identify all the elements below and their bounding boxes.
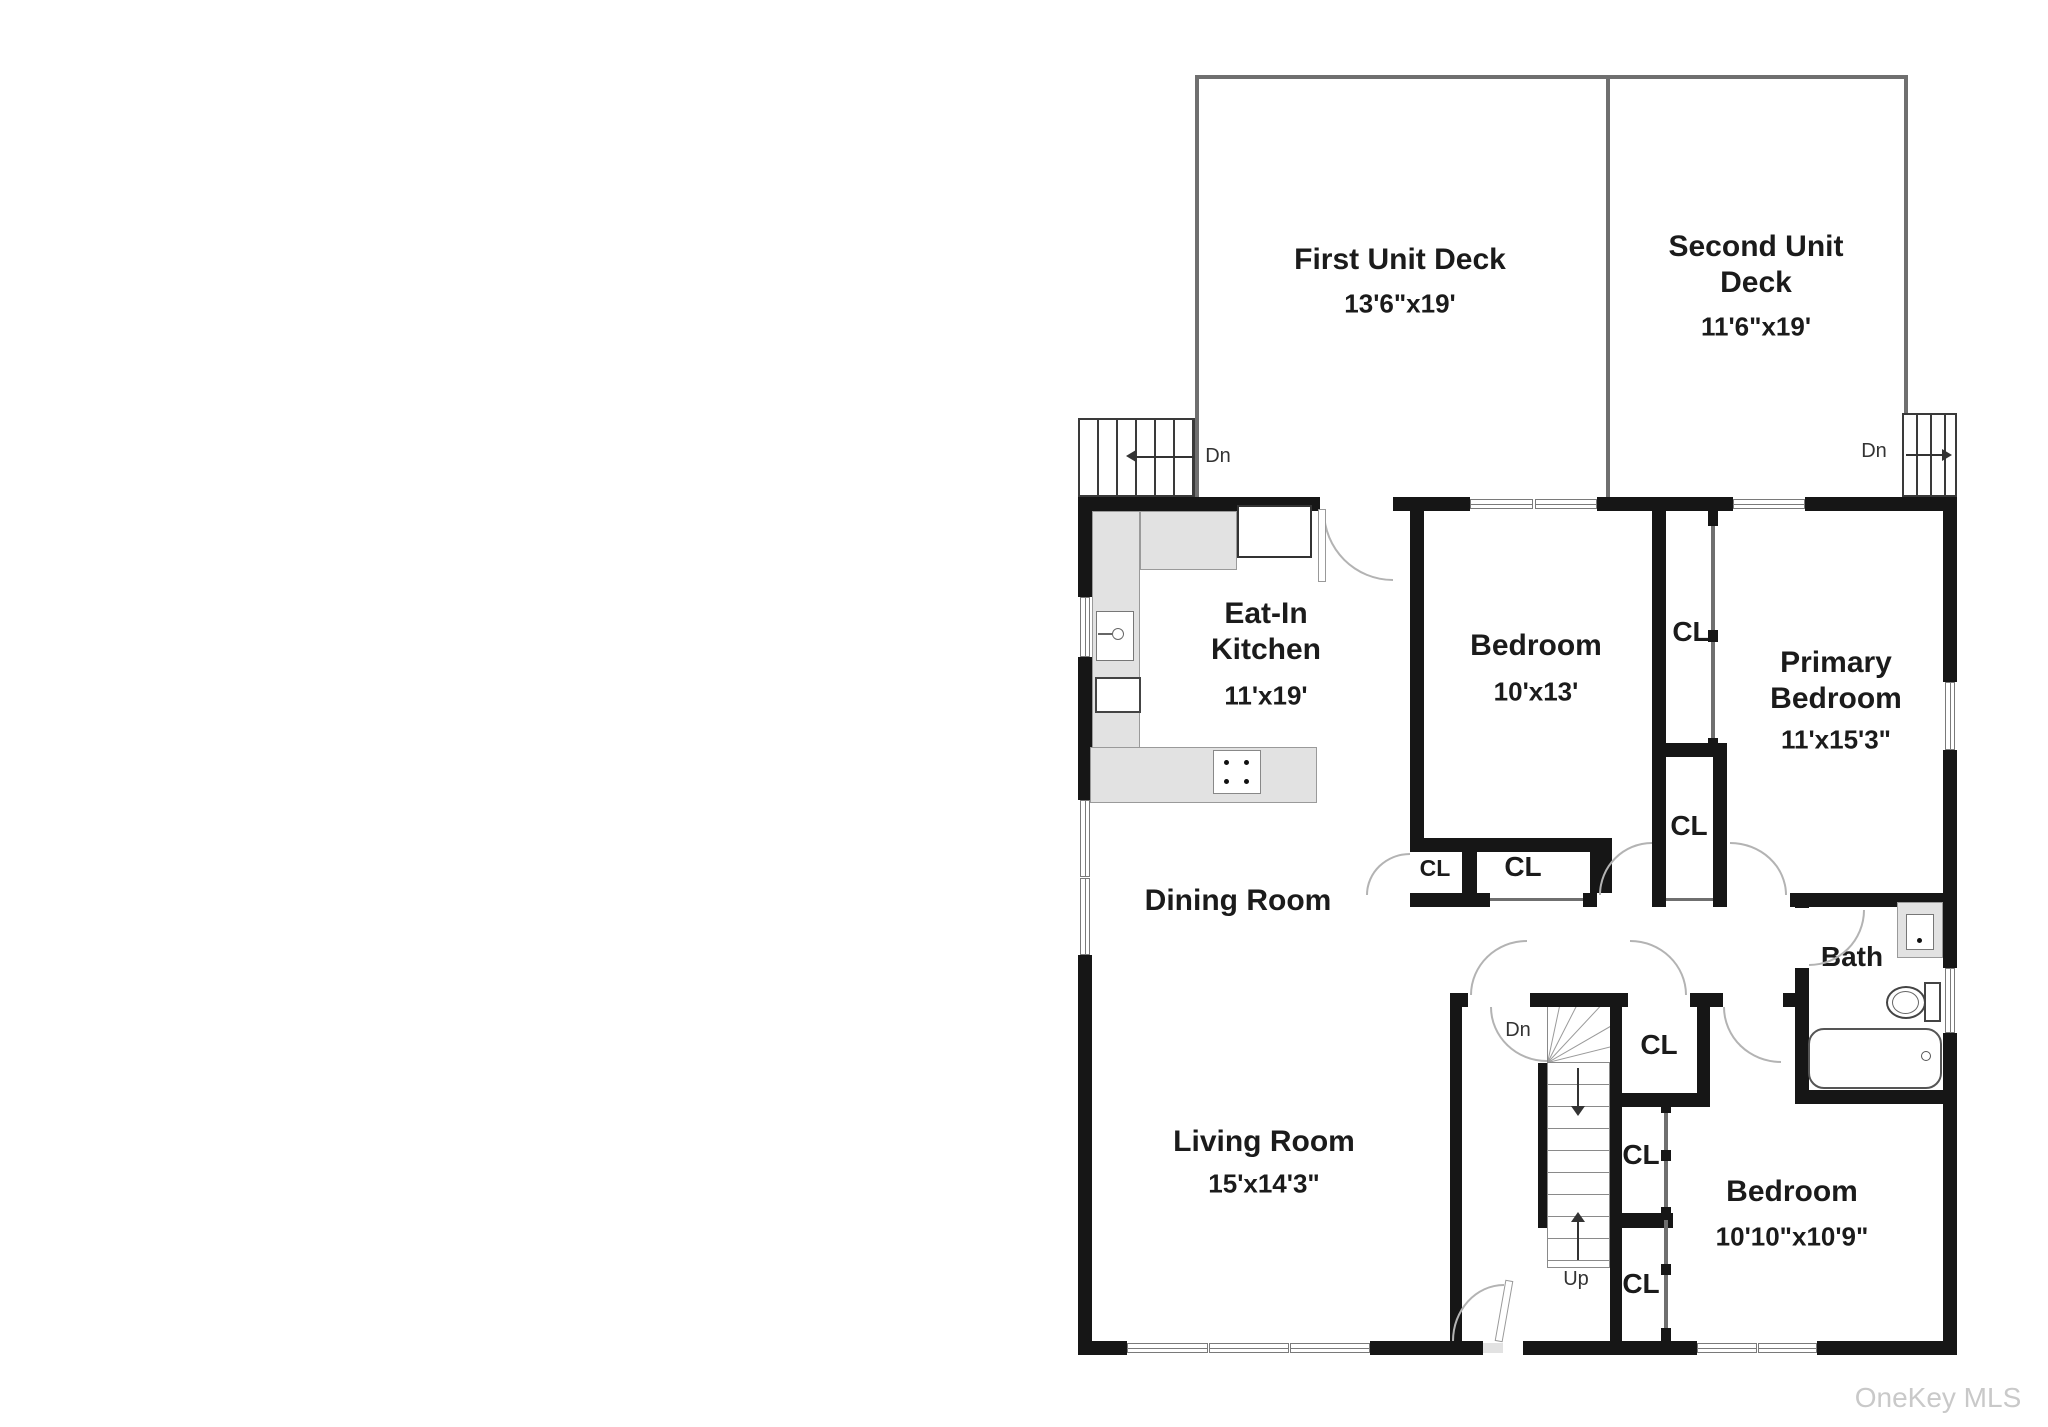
- interior-wall: [1795, 893, 1809, 908]
- stairs-up-arrow-head: [1571, 1212, 1585, 1222]
- exterior-wall: [1817, 1341, 1957, 1355]
- stairs-up-arrow: [1577, 1222, 1579, 1260]
- window: [1290, 1343, 1370, 1353]
- sliding-door-line: [1711, 511, 1715, 743]
- interior-wall: [1583, 893, 1597, 907]
- exterior-wall: [1943, 1033, 1957, 1355]
- window: [1080, 800, 1090, 877]
- stairs-down-arrow: [1577, 1068, 1579, 1106]
- exterior-wall: [1523, 1341, 1697, 1355]
- cooktop-icon: [1213, 750, 1261, 794]
- exterior-wall: [1943, 497, 1957, 682]
- exterior-wall: [1943, 750, 1957, 968]
- stair-winder-line: [1548, 1033, 1610, 1063]
- interior-wall: [1652, 511, 1666, 907]
- sliding-door-stop: [1661, 1100, 1671, 1113]
- stairs-up-label-interior: Up: [1563, 1267, 1589, 1291]
- closet-label-hall-small: CL: [1420, 855, 1451, 883]
- interior-wall: [1410, 511, 1424, 838]
- exterior-wall: [1805, 497, 1957, 511]
- interior-wall: [1450, 993, 1462, 1341]
- refrigerator-icon: [1237, 505, 1312, 558]
- sliding-door-stop: [1661, 1264, 1671, 1275]
- door-arc-icon: [1490, 1007, 1547, 1062]
- sliding-door-stop: [1708, 630, 1718, 642]
- stairs-down-arrow-head: [1571, 1106, 1585, 1116]
- window: [1758, 1343, 1817, 1353]
- closet-label-hall-wide: CL: [1504, 850, 1541, 884]
- window: [1733, 499, 1805, 509]
- kitchen-faucet-icon: [1112, 628, 1124, 640]
- dishwasher-icon: [1095, 677, 1141, 713]
- room-label-living-room: Living Room: [1173, 1124, 1355, 1160]
- stairs-arrow-head: [1942, 449, 1952, 461]
- room-label-dining-room: Dining Room: [1145, 883, 1332, 919]
- room-label-eat-in-kitchen: Eat-In Kitchen: [1181, 596, 1351, 668]
- sliding-door-stop: [1661, 1207, 1671, 1220]
- sliding-door-stop: [1708, 511, 1718, 526]
- floor-plan: First Unit Deck 13'6"x19' Second Unit De…: [0, 0, 2048, 1427]
- interior-wall: [1795, 968, 1809, 1097]
- closet-label-stair-mid: CL: [1622, 1138, 1659, 1172]
- interior-wall: [1610, 993, 1622, 1341]
- cooktop-burner: [1224, 779, 1229, 784]
- exterior-wall: [1078, 955, 1092, 1355]
- room-label-bedroom-lower: Bedroom: [1726, 1174, 1858, 1210]
- kitchen-peninsula: [1090, 747, 1317, 803]
- door-arc-icon: [1730, 842, 1787, 895]
- door-arc-icon: [1723, 1007, 1781, 1063]
- window: [1697, 1343, 1757, 1353]
- room-dims-living-room: 15'x14'3": [1208, 1168, 1319, 1199]
- bath-sink-drain: [1917, 938, 1922, 943]
- window: [1209, 1343, 1289, 1353]
- room-label-bedroom-upper: Bedroom: [1470, 628, 1602, 664]
- door-leaf-icon: [1318, 509, 1326, 582]
- interior-wall: [1410, 838, 1612, 852]
- stairs-arrow: [1136, 456, 1194, 458]
- door-arc-icon: [1470, 940, 1527, 995]
- interior-wall: [1690, 993, 1723, 1007]
- closet-label-stair-top: CL: [1640, 1028, 1677, 1062]
- stairs-arrow: [1906, 454, 1942, 456]
- door-arc-icon: [1630, 940, 1687, 995]
- room-dims-eat-in-kitchen: 11'x19': [1224, 680, 1307, 711]
- sliding-door-line: [1664, 1107, 1668, 1341]
- sliding-door-stop: [1708, 738, 1718, 753]
- window: [1080, 878, 1090, 955]
- toilet-tank-icon: [1924, 982, 1941, 1022]
- interior-wall: [1462, 852, 1477, 895]
- room-dims-bedroom-upper: 10'x13': [1494, 676, 1579, 707]
- interior-wall: [1713, 757, 1727, 907]
- closet-label-upper-column: CL: [1672, 615, 1709, 649]
- bathtub-faucet-icon: [1921, 1051, 1931, 1061]
- exterior-wall: [1597, 497, 1733, 511]
- entry-threshold: [1483, 1343, 1503, 1353]
- deck-wall: [1195, 75, 1199, 500]
- stairs-down-label-left-deck: Dn: [1205, 444, 1231, 468]
- window: [1945, 682, 1955, 750]
- deck-wall: [1195, 75, 1908, 79]
- room-dims-primary-bedroom: 11'x15'3": [1781, 724, 1891, 755]
- closet-label-lower-column: CL: [1670, 809, 1707, 843]
- interior-wall: [1783, 993, 1795, 1007]
- room-label-primary-bedroom: Primary Bedroom: [1731, 645, 1941, 717]
- sliding-door-line: [1490, 898, 1583, 901]
- sliding-door-line: [1666, 898, 1713, 901]
- toilet-bowl-inner: [1892, 991, 1919, 1014]
- stair-winder-icon: [1547, 1007, 1610, 1063]
- window: [1470, 499, 1533, 509]
- stairs-down-label-right-deck: Dn: [1861, 439, 1887, 463]
- sliding-door-stop: [1661, 1150, 1671, 1161]
- sliding-door-stop: [1661, 1328, 1671, 1341]
- bath-sink-icon: [1906, 914, 1934, 950]
- cooktop-burner: [1224, 760, 1229, 765]
- room-dims-second-unit-deck: 11'6"x19': [1701, 311, 1811, 342]
- exterior-wall: [1393, 497, 1470, 511]
- deck-wall: [1606, 75, 1610, 500]
- cooktop-burner: [1244, 779, 1249, 784]
- stairs-arrow-head: [1126, 450, 1136, 462]
- window: [1945, 968, 1955, 1033]
- kitchen-faucet-icon: [1098, 633, 1112, 635]
- window: [1127, 1343, 1208, 1353]
- room-dims-first-unit-deck: 13'6"x19': [1344, 288, 1455, 319]
- kitchen-counter: [1140, 511, 1237, 570]
- window: [1535, 499, 1597, 509]
- closet-label-stair-bottom: CL: [1622, 1267, 1659, 1301]
- interior-wall: [1410, 893, 1490, 907]
- room-label-second-unit-deck: Second Unit Deck: [1631, 229, 1881, 301]
- exterior-wall: [1370, 1341, 1483, 1355]
- interior-wall: [1795, 1090, 1943, 1104]
- window: [1080, 597, 1090, 657]
- room-label-first-unit-deck: First Unit Deck: [1294, 242, 1506, 278]
- watermark: OneKey MLS: [1855, 1381, 2022, 1415]
- cooktop-burner: [1244, 760, 1249, 765]
- door-arc-icon: [1366, 853, 1410, 895]
- exterior-wall: [1078, 497, 1092, 597]
- door-arc-icon: [1323, 511, 1393, 581]
- interior-wall: [1697, 1007, 1710, 1093]
- room-dims-bedroom-lower: 10'10"x10'9": [1716, 1221, 1869, 1252]
